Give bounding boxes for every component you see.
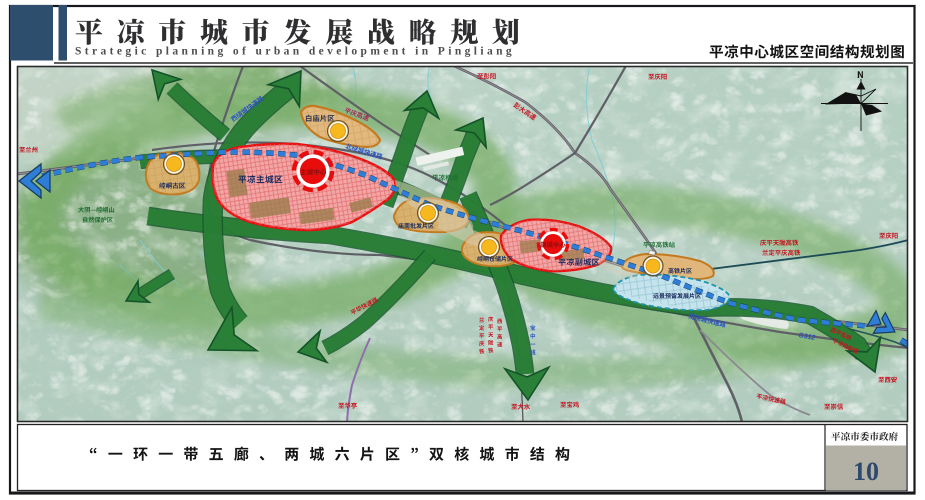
- svg-text:Strategic planning of urban de: Strategic planning of urban development …: [75, 46, 515, 58]
- svg-text:10: 10: [853, 457, 879, 486]
